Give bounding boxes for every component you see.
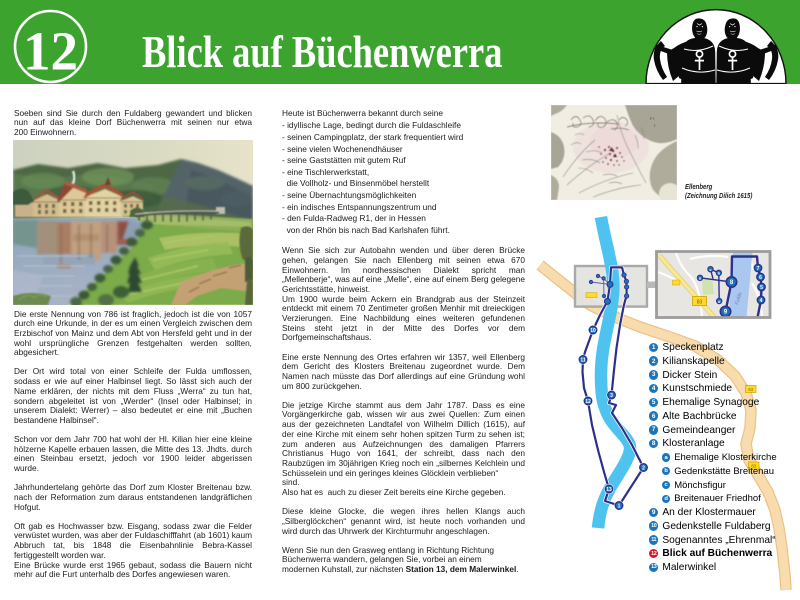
svg-text:3: 3 xyxy=(610,393,613,399)
svg-text:13: 13 xyxy=(606,487,612,493)
svg-text:12: 12 xyxy=(23,21,78,82)
svg-text:6: 6 xyxy=(759,275,762,281)
svg-text:83: 83 xyxy=(697,299,703,305)
svg-text:2: 2 xyxy=(642,466,645,472)
svg-text:10: 10 xyxy=(590,328,596,334)
svg-text:5: 5 xyxy=(760,285,763,291)
svg-text:L: L xyxy=(654,124,656,128)
svg-text:12: 12 xyxy=(585,399,591,405)
svg-text:1: 1 xyxy=(618,504,621,510)
svg-text:11: 11 xyxy=(580,358,586,364)
svg-text:7: 7 xyxy=(757,266,760,272)
svg-text:83: 83 xyxy=(748,387,753,392)
svg-text:4: 4 xyxy=(760,298,763,304)
